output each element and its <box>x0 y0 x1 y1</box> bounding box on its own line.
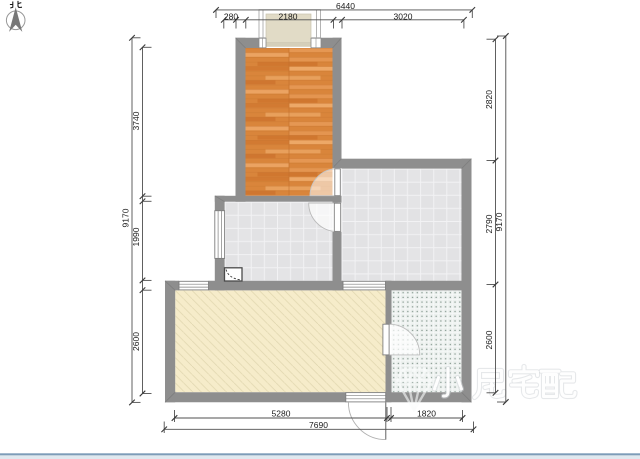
svg-text:3740: 3740 <box>131 111 141 130</box>
svg-text:1820: 1820 <box>417 408 436 418</box>
svg-text:280: 280 <box>224 11 238 21</box>
svg-text:2600: 2600 <box>484 330 494 349</box>
svg-text:2790: 2790 <box>484 214 494 233</box>
svg-text:9170: 9170 <box>120 208 130 227</box>
svg-text:2180: 2180 <box>279 11 298 21</box>
svg-text:5280: 5280 <box>272 408 291 418</box>
svg-text:1990: 1990 <box>131 227 141 246</box>
svg-text:6440: 6440 <box>336 1 355 11</box>
svg-text:3020: 3020 <box>394 11 413 21</box>
svg-text:9170: 9170 <box>494 212 504 231</box>
svg-text:2820: 2820 <box>484 90 494 109</box>
svg-text:2600: 2600 <box>131 332 141 351</box>
svg-text:7690: 7690 <box>309 420 328 430</box>
